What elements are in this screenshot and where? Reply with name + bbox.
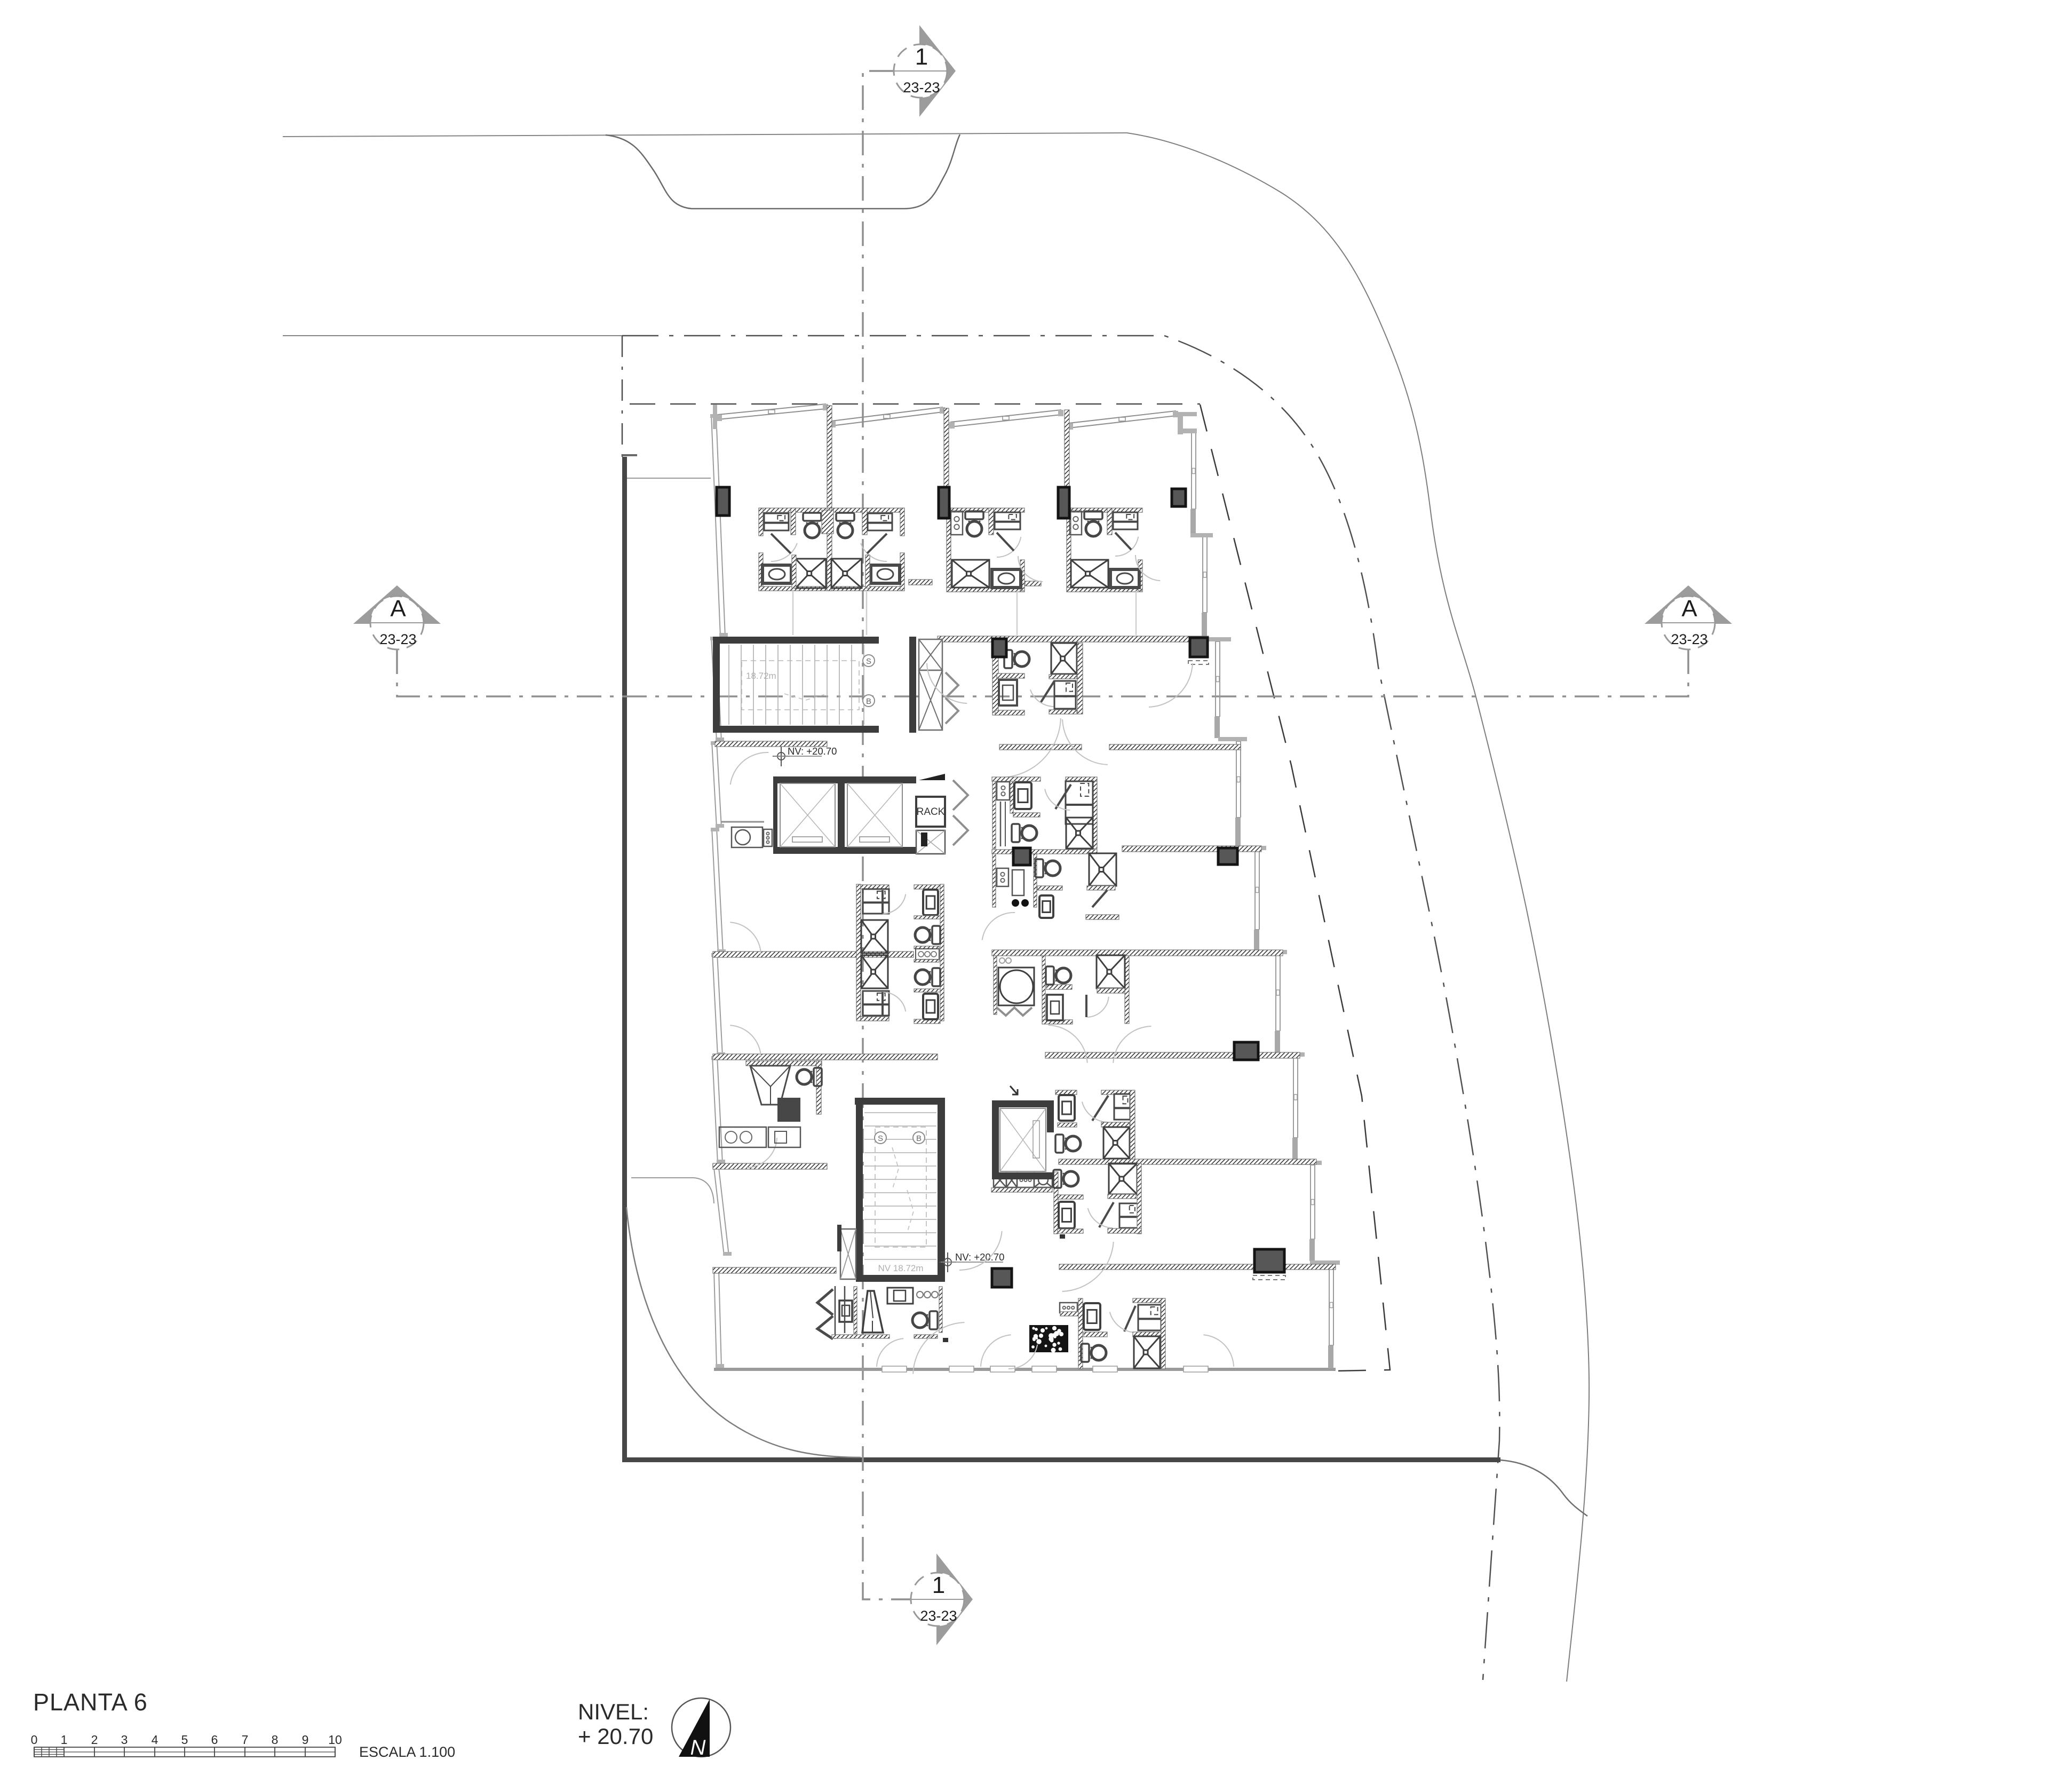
- svg-text:23-23: 23-23: [903, 80, 940, 96]
- svg-text:S: S: [878, 1134, 883, 1143]
- svg-text:NV: +20.70: NV: +20.70: [788, 746, 837, 757]
- svg-text:18.72m: 18.72m: [746, 671, 776, 681]
- svg-text:7: 7: [242, 1733, 249, 1747]
- svg-text:6: 6: [211, 1733, 218, 1747]
- svg-text:NV 18.72m: NV 18.72m: [878, 1263, 923, 1273]
- svg-text:23-23: 23-23: [379, 631, 416, 647]
- svg-text:2: 2: [91, 1733, 98, 1747]
- svg-text:8: 8: [272, 1733, 279, 1747]
- svg-text:+ 20.70: + 20.70: [578, 1724, 653, 1749]
- svg-text:ESCALA 1.100: ESCALA 1.100: [359, 1744, 455, 1760]
- svg-text:1: 1: [915, 44, 928, 70]
- svg-text:4: 4: [152, 1733, 158, 1747]
- svg-text:23-23: 23-23: [1671, 631, 1707, 647]
- svg-text:A: A: [1681, 596, 1697, 622]
- svg-text:NV: +20.70: NV: +20.70: [955, 1251, 1004, 1263]
- svg-text:N: N: [690, 1736, 706, 1759]
- svg-text:PLANTA 6: PLANTA 6: [33, 1688, 148, 1716]
- svg-text:5: 5: [181, 1733, 188, 1747]
- svg-text:23-23: 23-23: [920, 1608, 957, 1624]
- svg-text:RACK: RACK: [917, 806, 945, 818]
- svg-text:9: 9: [302, 1733, 309, 1747]
- svg-text:A: A: [390, 596, 406, 622]
- svg-text:B: B: [866, 697, 871, 706]
- svg-text:B: B: [916, 1134, 922, 1143]
- svg-text:1: 1: [61, 1733, 68, 1747]
- svg-text:1: 1: [932, 1572, 945, 1598]
- svg-text:10: 10: [328, 1733, 342, 1747]
- svg-text:0: 0: [31, 1733, 38, 1747]
- svg-text:NIVEL:: NIVEL:: [578, 1699, 649, 1724]
- svg-text:3: 3: [121, 1733, 128, 1747]
- svg-text:S: S: [866, 657, 871, 666]
